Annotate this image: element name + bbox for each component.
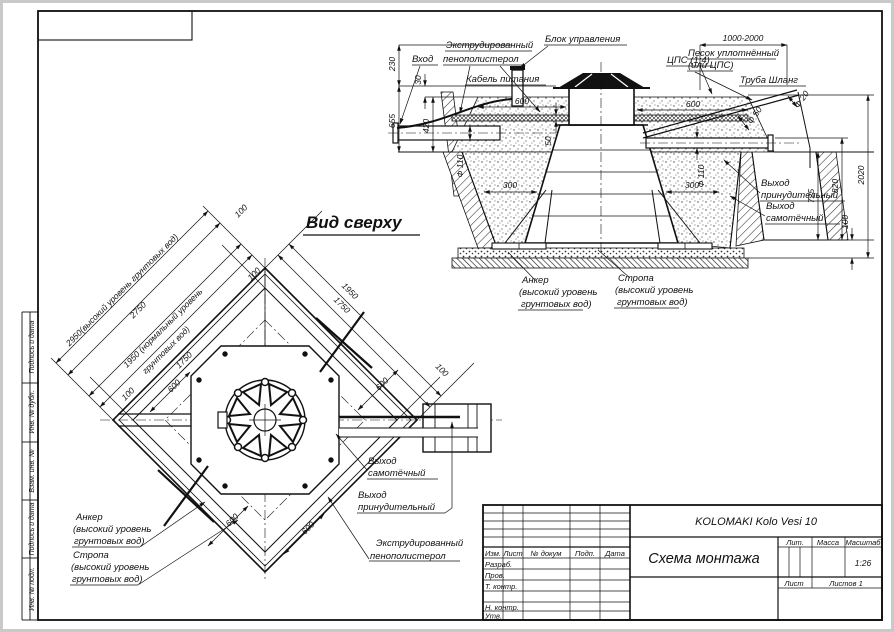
role-utv: Утв. [484, 612, 502, 621]
tank-top [191, 346, 339, 494]
dim-phi110-left: Ф 110 [455, 154, 465, 177]
strip-label-2: Инв. № дубл. [28, 390, 36, 433]
label-strap-2: (высокий уровень [615, 285, 693, 296]
role-tkontr: Т. контр. [485, 582, 517, 591]
label-sand-line1: Песок уплотнённый [688, 48, 780, 59]
top-left-stamp-box [38, 11, 192, 40]
col-sign: Подп. [575, 549, 595, 558]
dim-100-a: 100 [232, 202, 249, 219]
col-list: Лист [502, 549, 522, 558]
top-label-strap-2: (высокий уровень [71, 562, 149, 573]
top-label-eps-1: Экструдированный [376, 538, 464, 549]
label-strap-1: Стропа [618, 273, 654, 284]
top-label-gravity-2: самотёчный [368, 468, 426, 479]
label-anchor-2: (высокий уровень [519, 287, 597, 298]
dim-600-a: 600 [165, 377, 182, 394]
section-view: 230 30 655 420 600 600 50 Ф 110 Ф 110 30… [387, 33, 874, 310]
dim-600-b: 600 [373, 375, 390, 392]
lit-header: Лит. [785, 538, 804, 547]
label-outlet-gravity-1: Выход [766, 201, 795, 212]
label-outlet-forced-2: принудительный [761, 190, 839, 201]
scale-value: 1:26 [855, 558, 872, 568]
tank-neck [569, 88, 634, 125]
drawing-canvas: Подпись и дата Инв. № дубл. Взам. инв. №… [0, 0, 894, 632]
sheets-label: Листов 1 [828, 579, 863, 588]
label-anchor-3: грунтовых вод) [521, 299, 592, 310]
subsoil-layer [452, 258, 748, 268]
top-label-strap-3: грунтовых вод) [72, 574, 143, 585]
label-sand-line2: (или ЦПС) [688, 60, 734, 71]
strip-label-1: Подпись и дата [28, 320, 36, 373]
dim-655: 655 [387, 114, 397, 128]
main-frame-border [38, 11, 882, 620]
label-eps-line2: пенополистерол [443, 54, 519, 65]
dim-230: 230 [387, 57, 397, 72]
label-pipe-hose: Труба Шланг [740, 75, 798, 86]
view-title: Вид сверху [306, 213, 403, 232]
left-strip-labels: Подпись и дата Инв. № дубл. Взам. инв. №… [28, 320, 36, 610]
dim-100: 100 [840, 215, 850, 229]
dim-2750: 2750 [127, 299, 148, 320]
top-label-anchor-2: (высокий уровень [73, 524, 151, 535]
top-label-forced-1: Выход [358, 490, 387, 501]
dim-100-c: 100 [434, 361, 451, 378]
col-doc: № докум [531, 549, 562, 558]
dim-600-d: 600 [299, 519, 316, 536]
top-label-eps-2: пенополистерол [370, 551, 446, 562]
dim-1750: 1750 [174, 349, 195, 370]
label-control-unit: Блок управления [545, 34, 620, 45]
mass-header: Масса [817, 538, 839, 547]
top-label-forced-2: принудительный [358, 502, 436, 513]
dim-100-b: 100 [245, 265, 262, 282]
dim-420: 420 [421, 119, 431, 133]
label-strap-3: грунтовых вод) [617, 297, 688, 308]
top-label-strap-1: Стропа [73, 550, 109, 561]
foam-layer-left [452, 115, 569, 121]
role-razrab: Разраб. [485, 560, 512, 569]
strip-label-4: Подпись и дата [28, 502, 36, 555]
col-izm: Изм. [485, 549, 501, 558]
drawing-sheet: Подпись и дата Инв. № дубл. Взам. инв. №… [0, 0, 894, 632]
top-label-anchor-1: Анкер [75, 512, 103, 523]
label-power-cable: Кабель питания [466, 74, 539, 85]
dim-600-c: 600 [223, 511, 240, 528]
dim-300-right: 300 [685, 180, 699, 190]
top-label-gravity-1: Выход [368, 456, 397, 467]
strip-label-5: Инв. № подл. [28, 567, 36, 610]
scale-header: Масштаб [845, 538, 881, 547]
title-block: KOLOMAKI Kolo Vesi 10 Схема монтажа Лит.… [483, 505, 882, 621]
dim-1000-2000: 1000-2000 [723, 33, 764, 43]
document-title: Схема монтажа [648, 551, 760, 567]
product-name: KOLOMAKI Kolo Vesi 10 [695, 516, 818, 528]
label-outlet-gravity-2: самотёчный [766, 213, 824, 224]
dim-300-left: 300 [503, 180, 517, 190]
role-prov: Пров. [485, 571, 505, 580]
label-eps-line1: Экструдированный [446, 40, 534, 51]
dim-phi20: Ф 20 [792, 89, 811, 110]
lid-handle [218, 412, 227, 428]
tank-lid [558, 73, 645, 88]
label-inlet: Вход [412, 54, 433, 65]
strip-label-3: Взам. инв. № [29, 449, 36, 493]
col-date: Дата [604, 549, 625, 558]
label-anchor-1: Анкер [521, 275, 549, 286]
label-outlet-forced-1: Выход [761, 178, 790, 189]
sheet-label: Лист [783, 579, 803, 588]
dim-50: 50 [543, 136, 553, 146]
top-view: 2950(высокий уровень грунтовых вод) 2750… [51, 202, 502, 585]
dim-2020: 2020 [856, 165, 866, 185]
top-label-anchor-3: грунтовых вод) [74, 536, 145, 547]
dim-600-right: 600 [686, 99, 700, 109]
dim-30: 30 [413, 75, 423, 85]
